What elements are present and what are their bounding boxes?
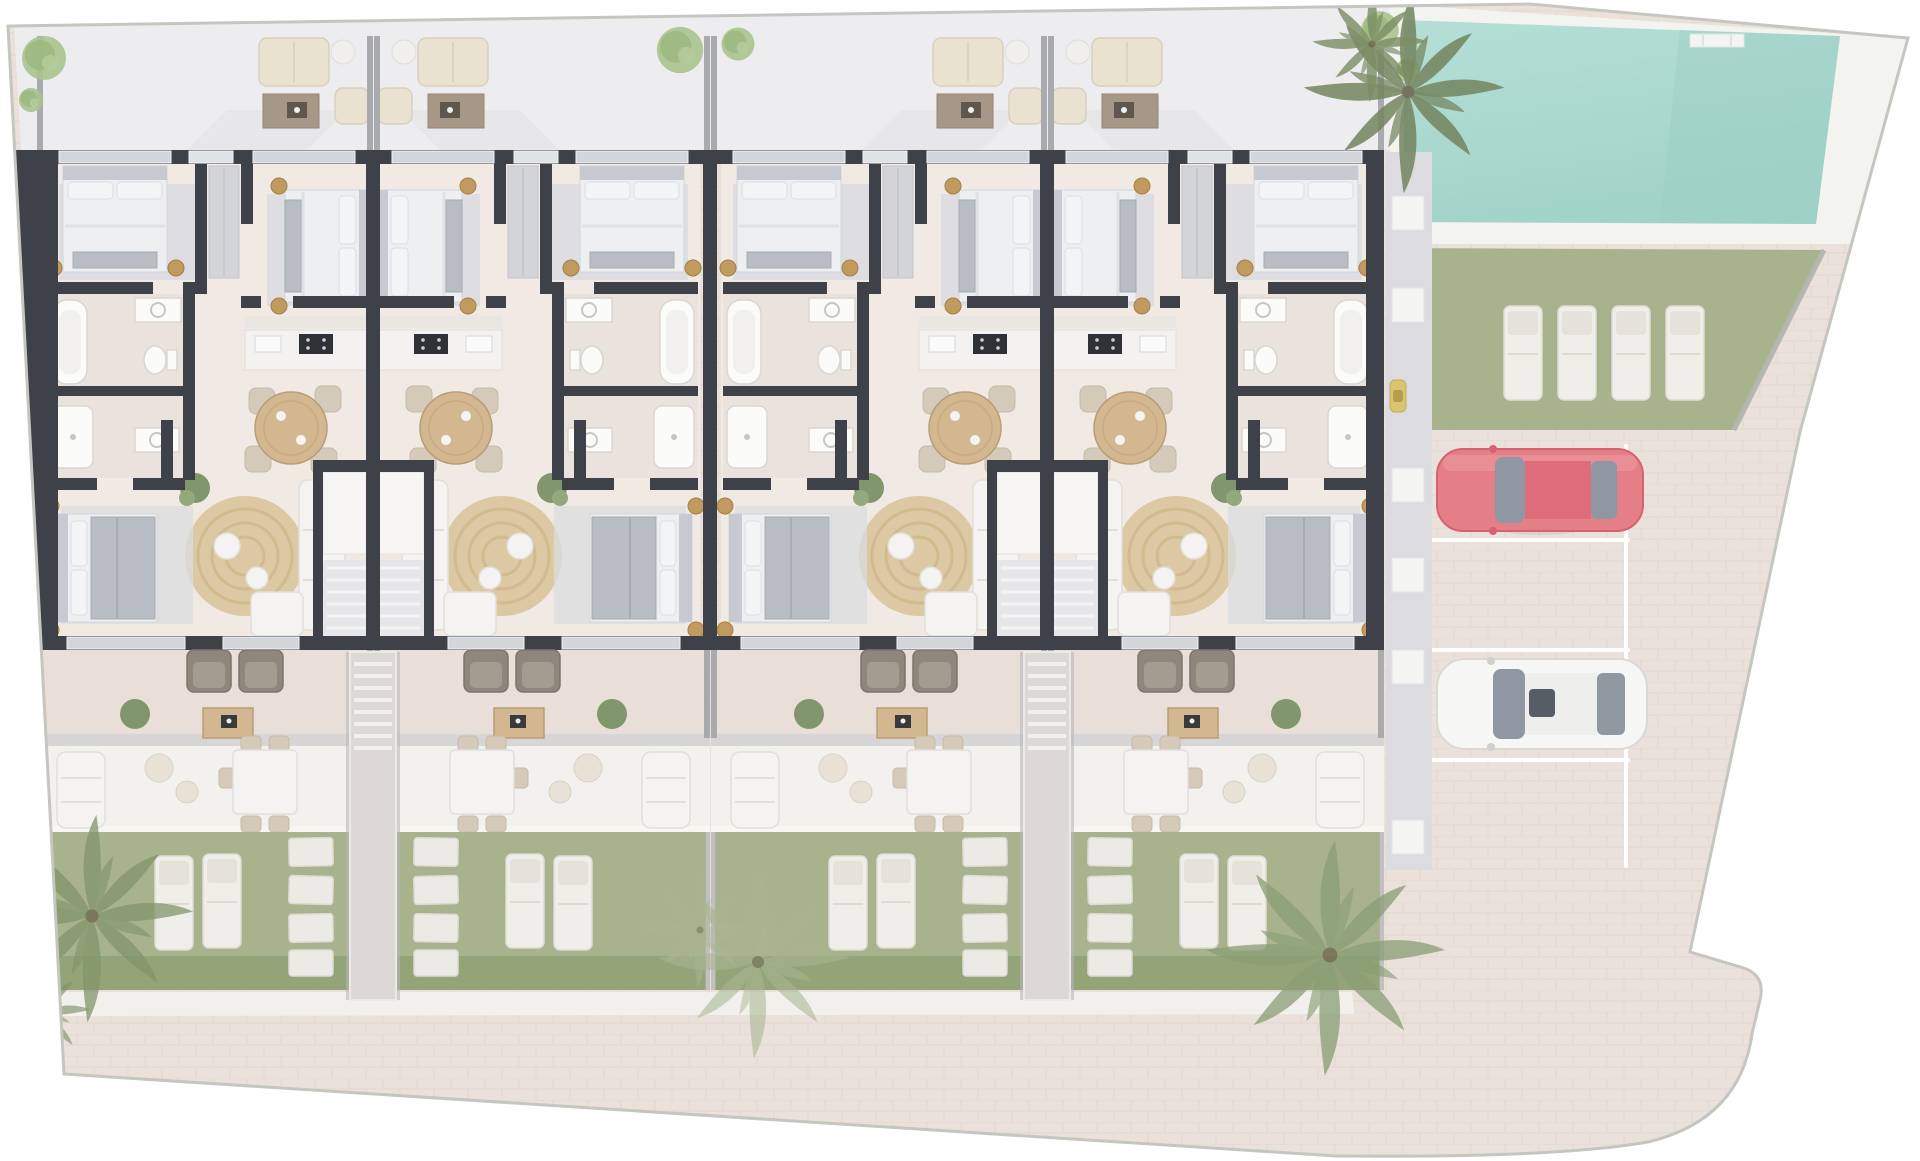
door-mat [1392, 650, 1424, 684]
party-wall [703, 150, 717, 650]
red-car [1436, 445, 1644, 535]
tree [22, 36, 66, 80]
windshield [1493, 669, 1525, 739]
site-plan [0, 0, 1920, 1161]
lawn-lounger [1612, 306, 1650, 400]
lawn-lounger [1666, 306, 1704, 400]
site-plan-stage [0, 0, 1920, 1161]
rear-window [1591, 461, 1617, 519]
pool-water-shade [1660, 30, 1840, 224]
door-mat [1392, 558, 1424, 592]
door-mat [1392, 820, 1424, 854]
side-walkway [1386, 152, 1432, 870]
shared-garden-stairs [1020, 652, 1074, 1000]
unit-3[interactable] [711, 36, 1047, 990]
door-mat [1392, 288, 1424, 322]
rear-window [1597, 673, 1625, 735]
windshield [1495, 457, 1525, 523]
white-car [1436, 657, 1648, 751]
tree [19, 88, 43, 112]
lawn-lounger [1504, 306, 1542, 400]
building-wall-right [1366, 150, 1384, 650]
unit-2[interactable] [374, 36, 710, 990]
party-wall [1040, 150, 1054, 650]
party-wall [366, 150, 380, 650]
sunroof [1529, 689, 1555, 717]
door-mat [1392, 196, 1424, 230]
pool-ladder [1690, 34, 1744, 47]
pool [1390, 4, 1908, 244]
tree [722, 28, 755, 61]
door-mat [1392, 468, 1424, 502]
lawn-lounger [1558, 306, 1596, 400]
tree [657, 27, 703, 73]
shared-garden-stairs [346, 652, 400, 1000]
